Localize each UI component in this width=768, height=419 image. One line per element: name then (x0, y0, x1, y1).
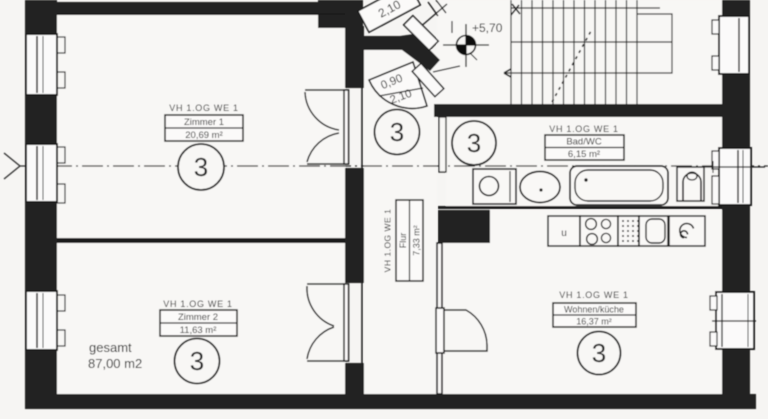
svg-text:3: 3 (390, 117, 404, 147)
svg-text:3: 3 (467, 128, 481, 158)
svg-text:3: 3 (194, 152, 208, 182)
svg-text:Bad/WC: Bad/WC (566, 137, 602, 148)
svg-text:Zimmer 1: Zimmer 1 (184, 117, 224, 128)
svg-text:Wohnen/küche: Wohnen/küche (564, 305, 624, 315)
svg-text:3: 3 (592, 338, 606, 368)
svg-text:20,69 m²: 20,69 m² (185, 130, 223, 141)
svg-text:11,63 m²: 11,63 m² (180, 325, 217, 336)
svg-text:gesamt: gesamt (89, 340, 132, 355)
svg-text:16,37 m²: 16,37 m² (576, 317, 612, 327)
svg-text:Flur: Flur (398, 233, 408, 249)
svg-text:VH 1.OG WE 1: VH 1.OG WE 1 (559, 290, 628, 300)
svg-text:Zimmer 2: Zimmer 2 (178, 312, 218, 323)
svg-text:VH 1.OG WE 1: VH 1.OG WE 1 (383, 209, 393, 273)
svg-text:87,00 m2: 87,00 m2 (88, 356, 142, 371)
svg-text:6,15 m²: 6,15 m² (568, 149, 600, 160)
svg-text:u: u (561, 228, 567, 239)
svg-text:VH 1.OG WE 1: VH 1.OG WE 1 (163, 299, 232, 309)
svg-text:VH 1.OG WE 1: VH 1.OG WE 1 (549, 124, 618, 134)
svg-text:+5,70: +5,70 (472, 21, 503, 35)
svg-text:3: 3 (190, 346, 204, 376)
svg-text:7,33 m²: 7,33 m² (412, 225, 422, 256)
svg-text:VH 1.OG WE 1: VH 1.OG WE 1 (169, 103, 238, 113)
